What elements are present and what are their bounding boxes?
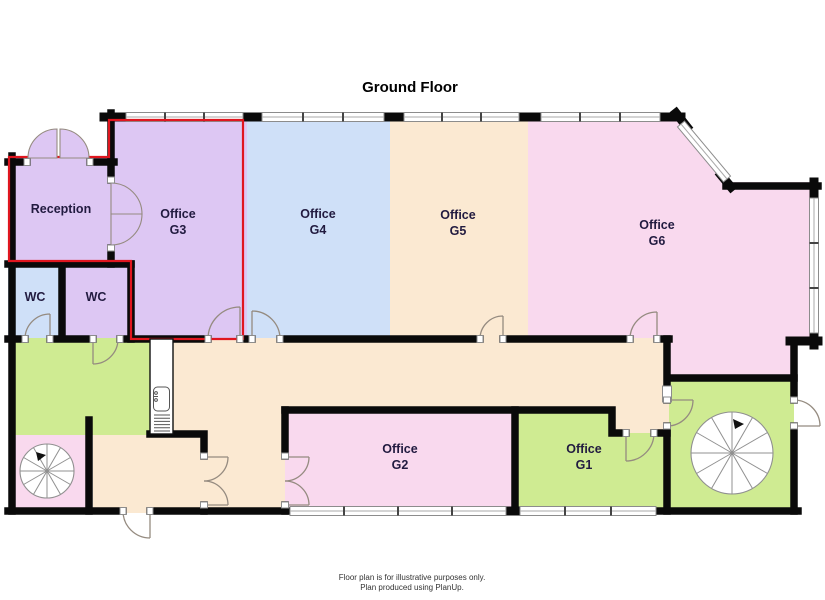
svg-text:Office: Office: [440, 208, 475, 222]
svg-text:Office: Office: [639, 218, 674, 232]
window-top-g6: [541, 113, 660, 122]
spiral-staircase-right: [691, 412, 773, 494]
footer-line-2: Plan produced using PlanUp.: [360, 583, 464, 592]
svg-text:G5: G5: [450, 224, 467, 238]
svg-text:G1: G1: [576, 458, 593, 472]
spiral-staircase-left: [20, 444, 74, 498]
svg-text:Office: Office: [382, 442, 417, 456]
window-top-g5: [404, 113, 519, 122]
window-top-g4: [262, 113, 384, 122]
door-entrance-bottom: [123, 511, 150, 538]
label-wc-left: WC: [25, 290, 46, 304]
door-stair-right-exterior: [794, 400, 820, 426]
room-kitchen: [12, 338, 150, 435]
svg-text:G4: G4: [310, 223, 327, 237]
svg-text:G2: G2: [392, 458, 409, 472]
svg-text:G3: G3: [170, 223, 187, 237]
svg-text:Office: Office: [160, 207, 195, 221]
window-bottom-g2: [290, 507, 506, 516]
footer-line-1: Floor plan is for illustrative purposes …: [339, 573, 486, 582]
floor-plan-page: Ground Floor Reception WC WC Office G3 O…: [0, 0, 825, 600]
label-reception: Reception: [31, 202, 91, 216]
label-wc-right: WC: [86, 290, 107, 304]
svg-text:Office: Office: [300, 207, 335, 221]
door-entrance-reception: [28, 129, 89, 158]
svg-text:Office: Office: [566, 442, 601, 456]
window-right-g6: [810, 198, 819, 333]
kitchen-counter: [150, 339, 173, 434]
svg-text:G6: G6: [649, 234, 666, 248]
page-title: Ground Floor: [362, 79, 458, 96]
footer-disclaimer: Floor plan is for illustrative purposes …: [339, 573, 486, 592]
window-bottom-g1: [520, 507, 656, 516]
floor-plan-canvas: Ground Floor Reception WC WC Office G3 O…: [0, 0, 825, 600]
